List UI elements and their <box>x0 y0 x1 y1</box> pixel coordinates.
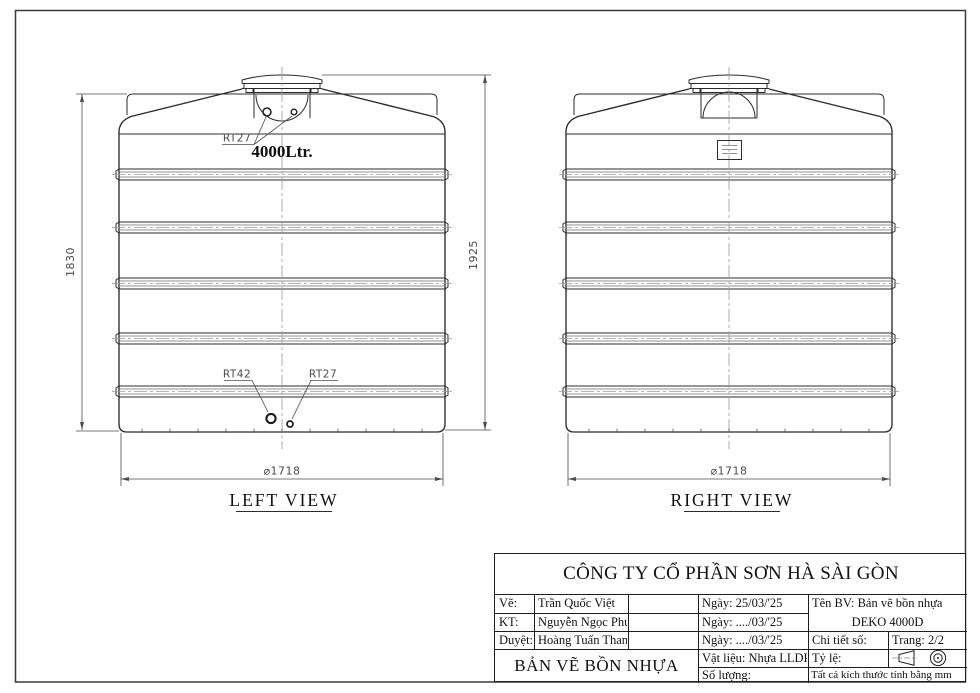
drawn-by-name: Trần Quốc Việt <box>538 594 627 613</box>
approved-date: Ngày: ..../03/'25 <box>702 631 807 649</box>
projection-symbol-icon <box>891 649 965 667</box>
checked-by-label: KT: <box>499 613 533 631</box>
bottom-fitting-left-circle <box>266 414 275 423</box>
bottom-fitting-right-label: RT27 <box>309 369 337 381</box>
left-view-title: LEFT VIEW <box>229 490 338 510</box>
quantity-label: Số lượng: <box>702 667 807 683</box>
top-fitting-right-circle <box>291 109 297 115</box>
top-fitting-label: RT27 <box>223 133 251 145</box>
dim-diameter-left: ⌀1718 <box>263 465 300 478</box>
top-fitting-left-circle <box>263 108 271 116</box>
scale-label: Tỷ lệ: <box>812 649 887 667</box>
right-view-title: RIGHT VIEW <box>671 490 794 510</box>
page-number: Trang: 2/2 <box>892 631 966 649</box>
left-view-drawing: ⌀1718LEFT VIEWRT274000Ltr.RT42RT27183019… <box>64 67 491 512</box>
drawing-title: BẢN VẼ BỒN NHỰA <box>495 649 698 683</box>
company-name: CÔNG TY CỔ PHẦN SƠN HÀ SÀI GÒN <box>495 554 967 594</box>
checked-date: Ngày: ..../03/'25 <box>702 613 807 631</box>
drawn-date: Ngày: 25/03/'25 <box>702 594 807 613</box>
drawing-sheet: ⌀1718LEFT VIEWRT274000Ltr.RT42RT27183019… <box>0 0 980 693</box>
bottom-fitting-left-label: RT42 <box>223 369 251 381</box>
bottom-fitting-right-circle <box>287 421 293 427</box>
material: Vật liệu: Nhựa LLDPE <box>702 649 807 667</box>
dim-height-shoulder: 1830 <box>64 247 77 277</box>
title-block: CÔNG TY CỔ PHẦN SƠN HÀ SÀI GÒN Vẽ: Trần … <box>494 553 966 682</box>
detail-number-label: Chi tiết số: <box>812 631 887 649</box>
dim-diameter-right: ⌀1718 <box>710 465 747 478</box>
dim-height-total: 1925 <box>467 240 480 270</box>
capacity-label: 4000Ltr. <box>251 142 312 161</box>
checked-by-name: Nguyễn Ngọc Phú <box>538 613 627 631</box>
right-view-drawing: ⌀1718RIGHT VIEW <box>559 67 899 512</box>
drawing-name-line2: DEKO 4000D <box>808 613 967 631</box>
drawing-name-line1: Tên BV: Bản vẽ bồn nhựa <box>812 594 966 613</box>
drawn-by-label: Vẽ: <box>499 594 533 613</box>
approved-by-label: Duyệt: <box>499 631 533 649</box>
approved-by-name: Hoàng Tuấn Thanh <box>538 631 627 649</box>
dimensions-note: Tất cả kích thước tính bằng mm <box>811 667 966 683</box>
logo-plate <box>718 141 742 160</box>
